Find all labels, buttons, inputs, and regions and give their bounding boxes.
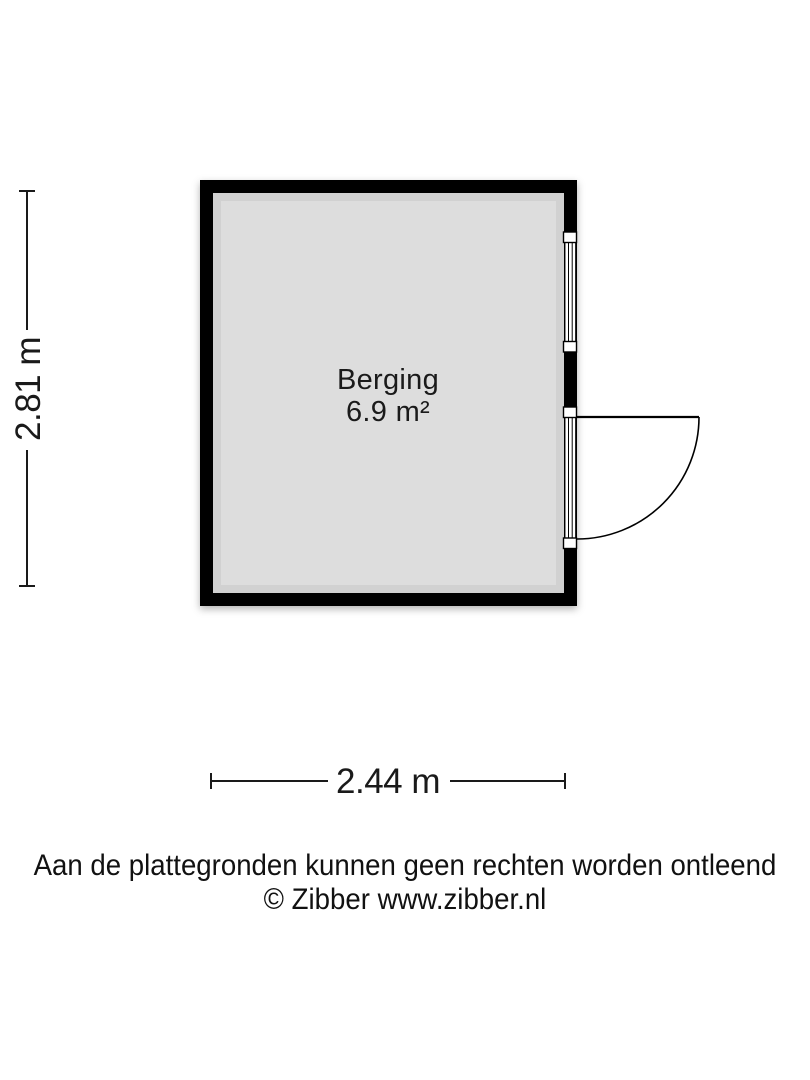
dimension-horizontal-label: 2.44 m <box>336 762 440 801</box>
room-area-label: 6.9 m² <box>346 396 430 428</box>
door-swing-arc <box>577 417 699 539</box>
window-icon <box>564 232 577 352</box>
door-icon <box>564 407 700 549</box>
dimension-vertical-label: 2.81 m <box>9 337 48 441</box>
room-name-label: Berging <box>337 364 439 396</box>
credit-text: © Zibber www.zibber.nl <box>32 883 777 917</box>
floor-plan: Berging 6.9 m² 2.81 m 2.44 m <box>0 0 810 1080</box>
floor-plan-page: Berging 6.9 m² 2.81 m 2.44 m Aan de plat… <box>0 0 810 1080</box>
disclaimer-text: Aan de plattegronden kunnen geen rechten… <box>32 849 777 883</box>
